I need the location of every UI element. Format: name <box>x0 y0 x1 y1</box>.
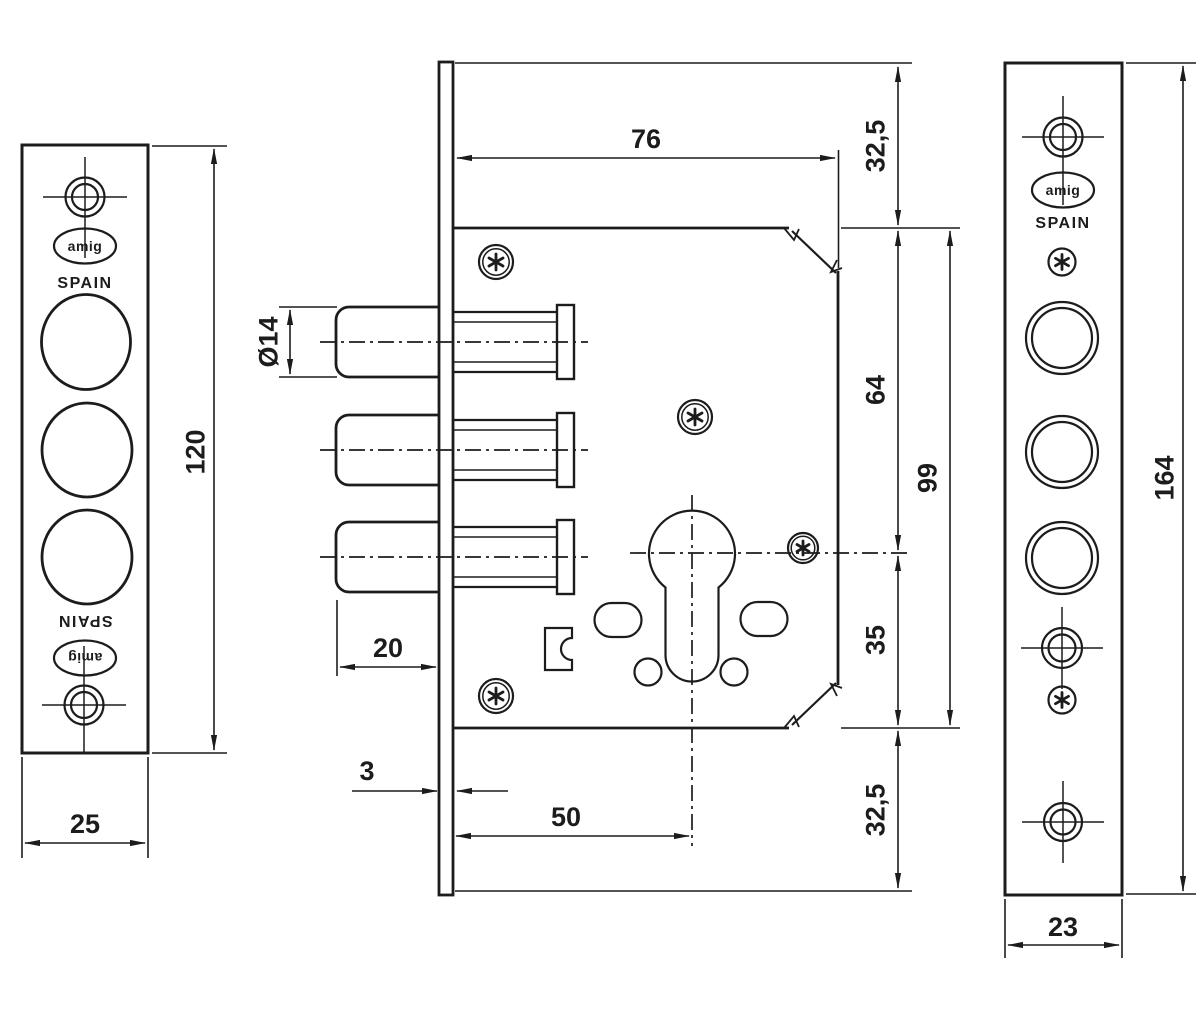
dim-32-5-top: 32,5 <box>861 67 899 225</box>
dim-76: 76 <box>457 124 835 158</box>
bottom-chamfer <box>792 683 836 725</box>
dim-64-label: 64 <box>861 375 891 405</box>
faceplate-edge <box>439 62 453 895</box>
dim-35-label: 35 <box>861 625 891 655</box>
dim-32-5-bottom-label: 32,5 <box>861 784 891 837</box>
dim-25: 25 <box>22 757 148 858</box>
dim-120-label: 120 <box>181 429 211 474</box>
chamfer-hook <box>784 228 799 240</box>
dim-23-label: 23 <box>1048 912 1078 942</box>
lock-technical-drawing-page: amig SPAIN SPAIN amig 120 25 <box>0 0 1200 1026</box>
oval-hole-left <box>595 603 642 637</box>
lock-case-outline <box>453 228 842 728</box>
dim-164-label: 164 <box>1150 455 1180 500</box>
dim-20: 20 <box>337 600 436 676</box>
chamfer-hook <box>831 684 842 696</box>
dim-50: 50 <box>456 802 689 836</box>
chamfer-hook <box>784 716 799 728</box>
amig-logo-text-right: amig <box>1046 182 1081 198</box>
cam-notch <box>545 628 572 670</box>
dim-76-label: 76 <box>631 124 661 154</box>
spain-label-right: SPAIN <box>1035 215 1090 232</box>
amig-logo-text: amig <box>68 238 103 254</box>
left-faceplate-view: amig SPAIN SPAIN amig 120 25 <box>22 145 227 858</box>
dim-164: 164 <box>1126 63 1196 894</box>
right-faceplate-view: amig SPAIN 164 <box>1005 63 1196 958</box>
lock-technical-drawing: amig SPAIN SPAIN amig 120 25 <box>0 0 1200 1026</box>
dim-120: 120 <box>152 146 227 753</box>
dim-o14-label: Ø14 <box>254 316 284 367</box>
dim-32-5-bottom: 32,5 <box>861 731 899 888</box>
dim-3-label: 3 <box>359 756 374 786</box>
lock-body-view: 76 32,5 64 35 32,5 99 <box>254 62 961 895</box>
dim-99-label: 99 <box>913 463 943 493</box>
dim-20-label: 20 <box>373 633 403 663</box>
dim-25-label: 25 <box>70 809 100 839</box>
torx-screw-icon <box>788 533 818 563</box>
dim-32-5-top-label: 32,5 <box>861 120 891 173</box>
top-chamfer <box>792 231 836 273</box>
torx-screw-icon <box>479 679 513 713</box>
round-hole-left <box>635 659 662 686</box>
dim-50-label: 50 <box>551 802 581 832</box>
dim-64: 64 <box>861 231 899 550</box>
chamfer-hook <box>831 260 842 272</box>
dim-3: 3 <box>352 756 508 791</box>
torx-screw-icon <box>678 400 712 434</box>
torx-screw-icon <box>479 245 513 279</box>
dim-35: 35 <box>861 556 899 725</box>
spain-label-inverted: SPAIN <box>57 612 112 629</box>
spain-label: SPAIN <box>57 275 112 292</box>
dim-23: 23 <box>1005 899 1122 958</box>
amig-logo-text-inverted: amig <box>68 650 103 666</box>
oval-hole-right <box>741 602 788 636</box>
dim-99: 99 <box>913 231 951 725</box>
round-hole-right <box>721 659 748 686</box>
